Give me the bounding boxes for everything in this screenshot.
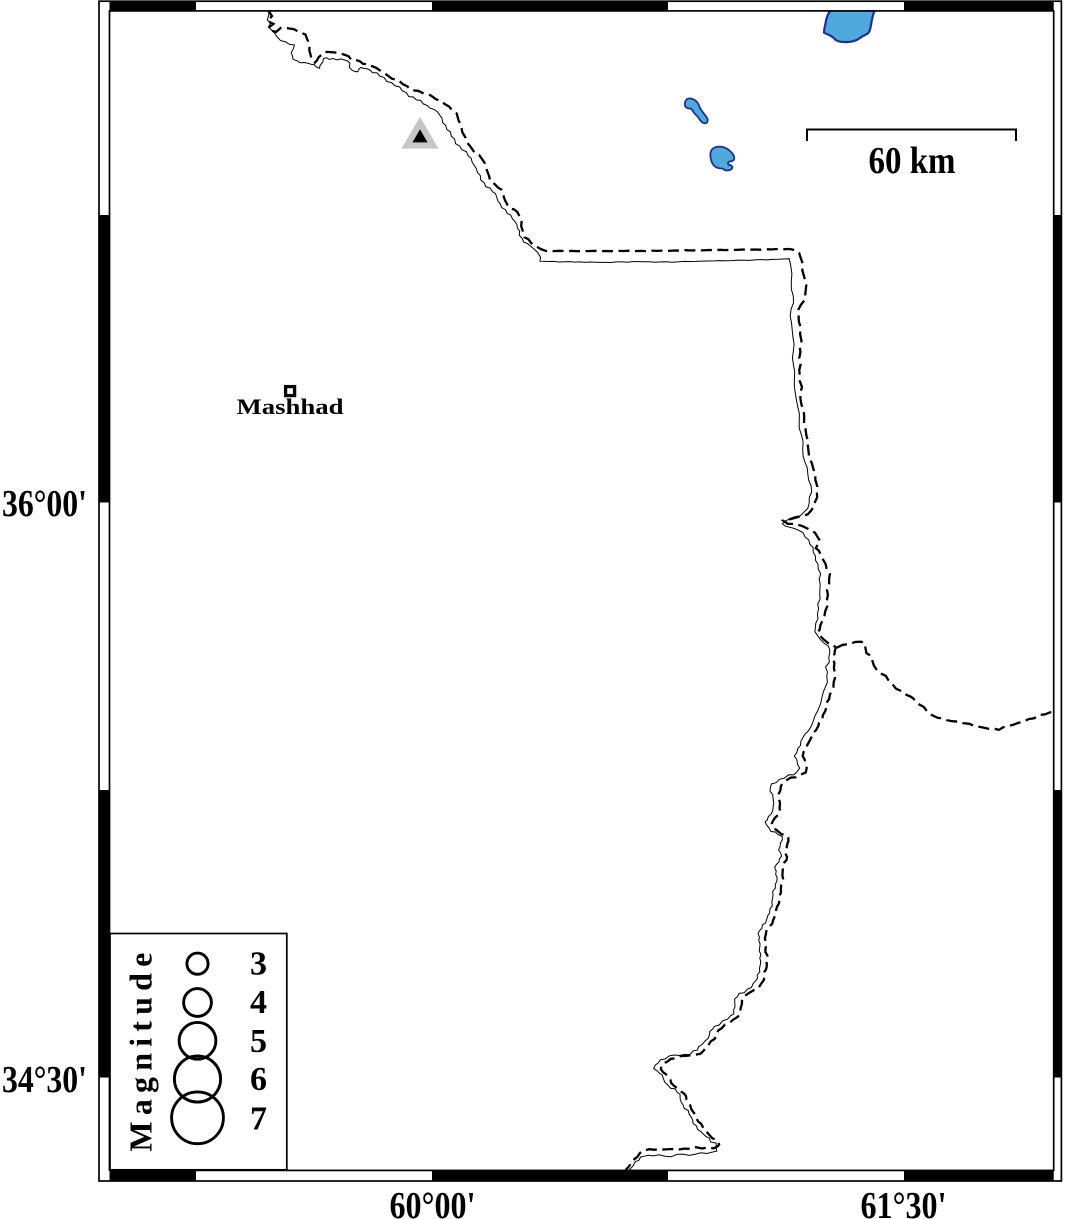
svg-text:Mashhad: Mashhad	[237, 394, 344, 419]
svg-text:Magnitude: Magnitude	[123, 946, 159, 1151]
svg-text:60°00': 60°00'	[390, 1185, 476, 1219]
svg-text:34°30': 34°30'	[2, 1059, 87, 1101]
svg-text:4: 4	[250, 984, 267, 1021]
svg-text:36°00': 36°00'	[2, 483, 87, 525]
svg-text:61°30': 61°30'	[861, 1185, 947, 1219]
svg-text:5: 5	[250, 1023, 267, 1060]
svg-text:6: 6	[250, 1061, 267, 1098]
svg-text:3: 3	[250, 945, 267, 982]
svg-text:60 km: 60 km	[869, 140, 956, 182]
svg-text:7: 7	[250, 1100, 267, 1137]
